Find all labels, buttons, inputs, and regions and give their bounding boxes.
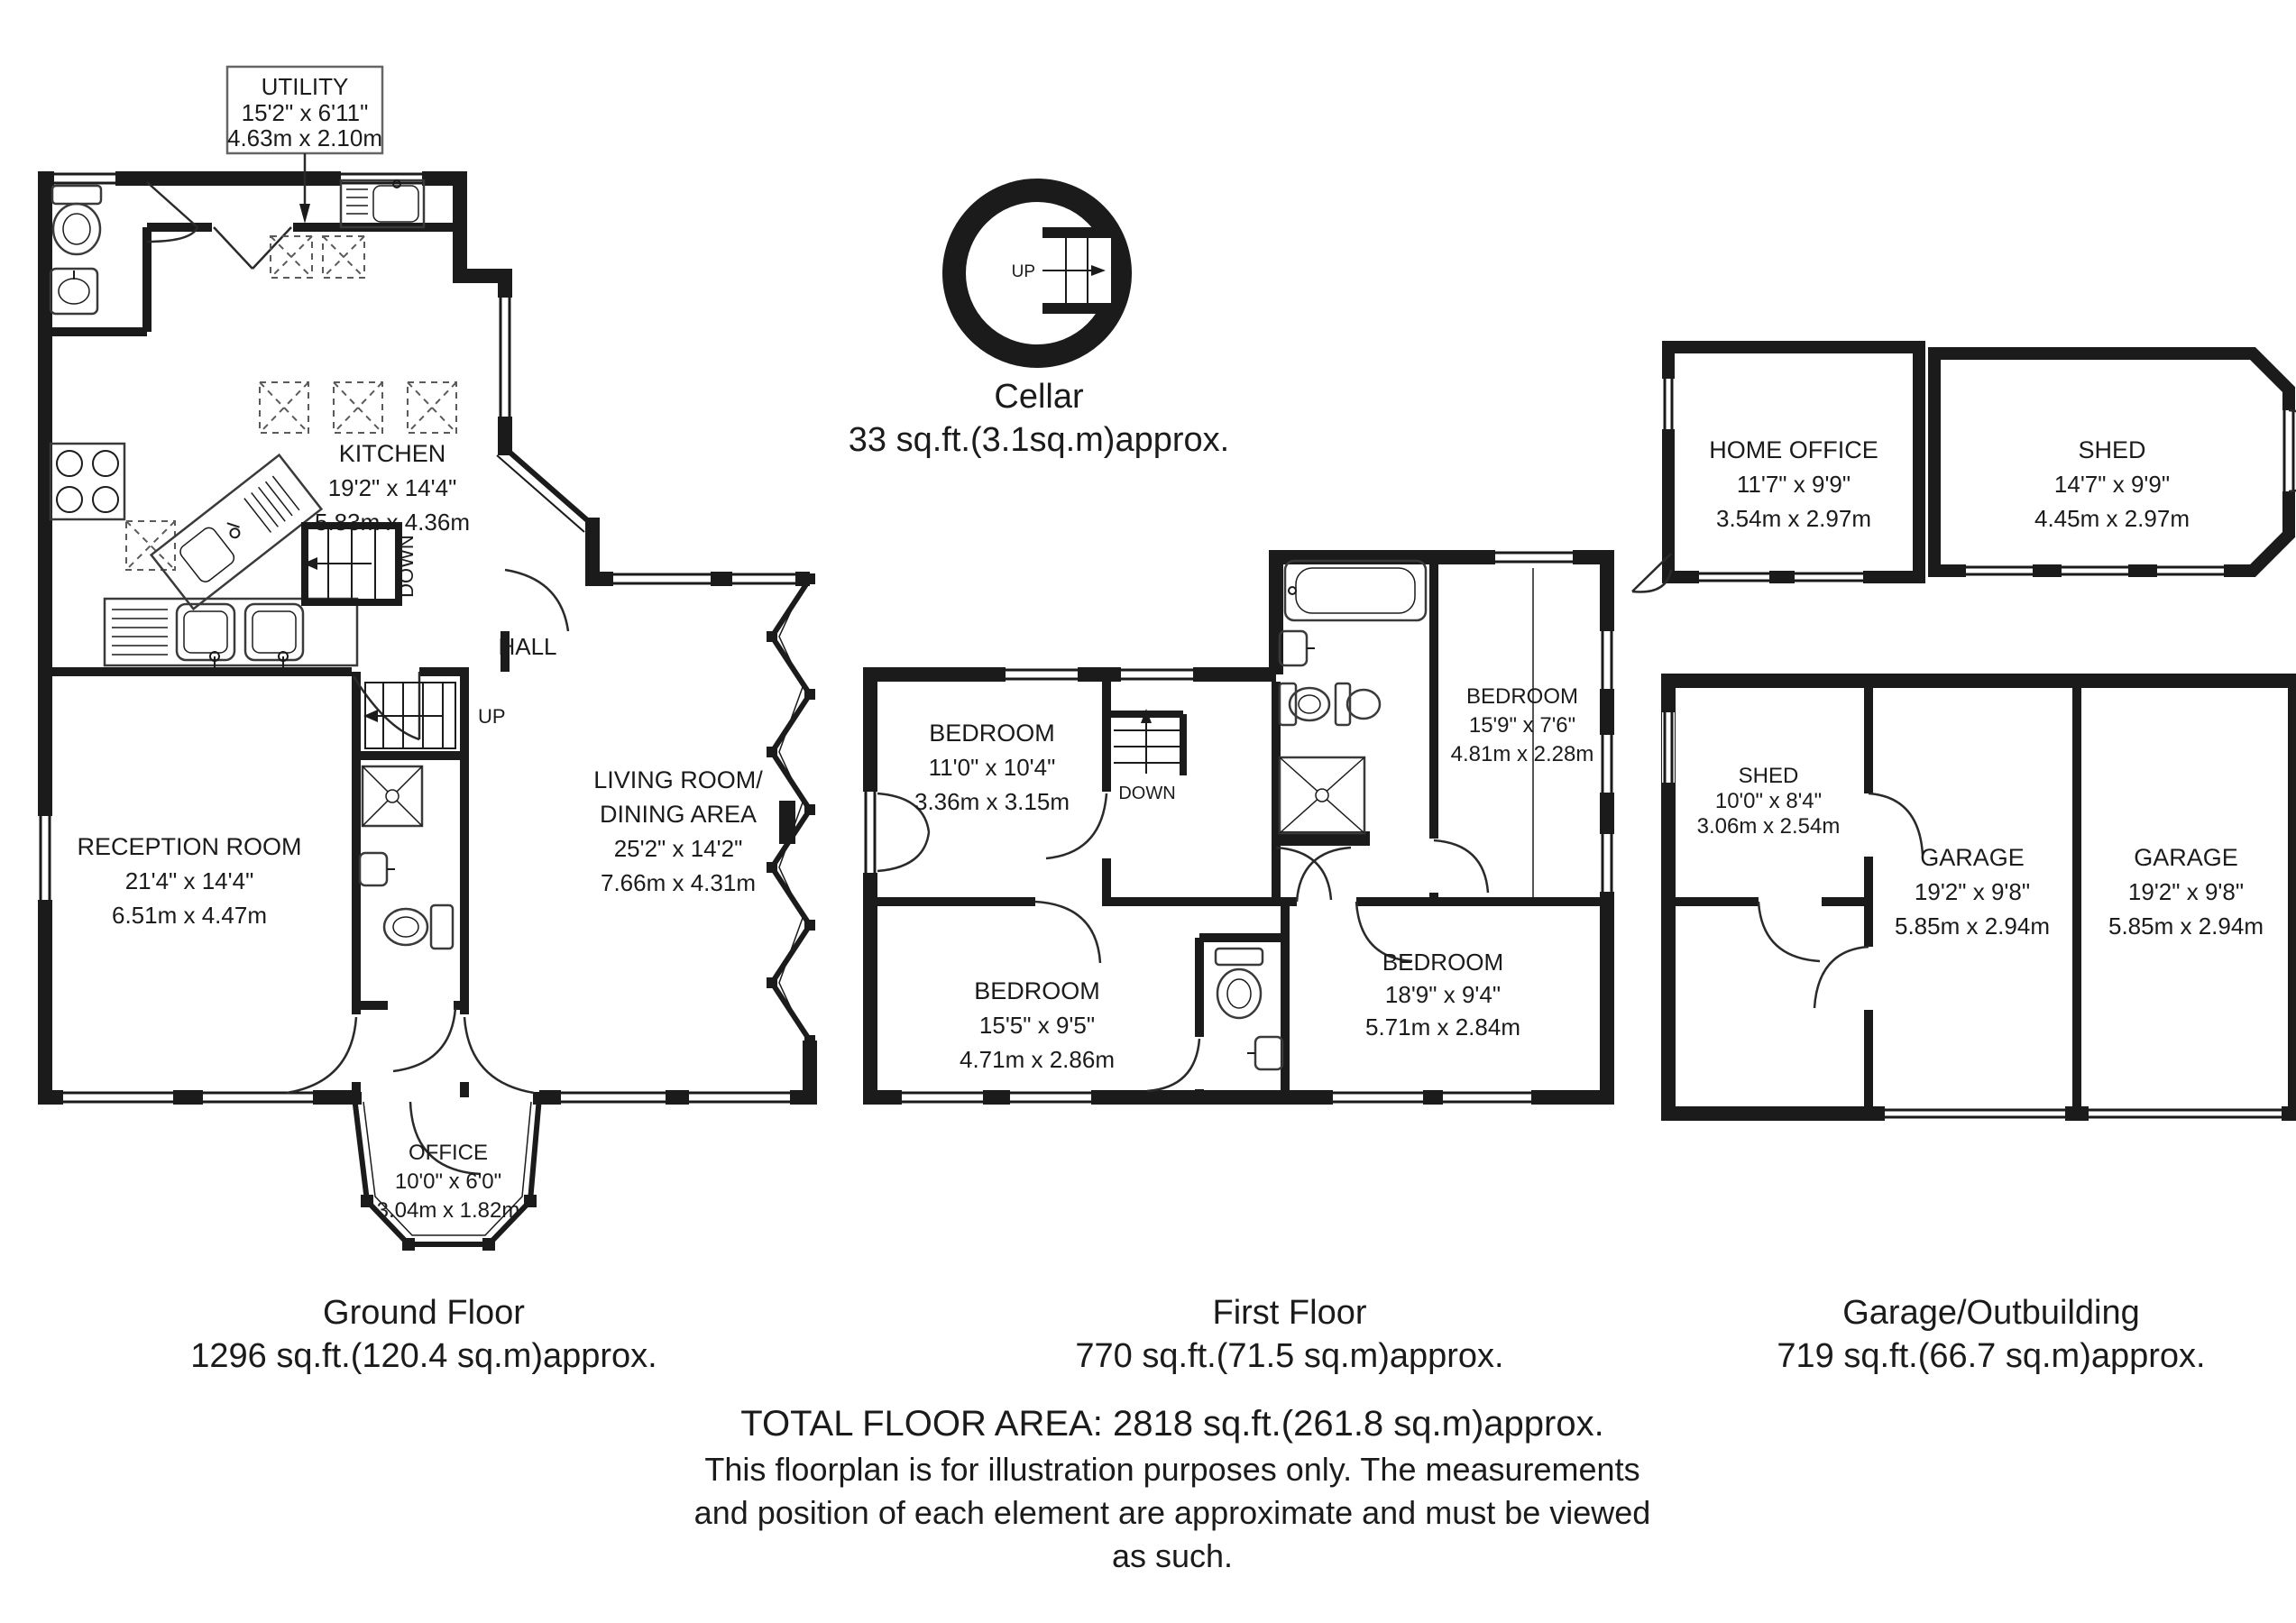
hall-room-label: HALL: [498, 633, 556, 660]
cloakroom-toilet-icon: [384, 905, 453, 949]
utility-callout: UTILITY 15'2" x 6'11" 4.63m x 2.10m: [227, 67, 382, 224]
outbuilding-plan: HOME OFFICE 11'7" x 9'9" 3.54m x 2.97m S…: [1632, 347, 2296, 1121]
bedroom-se-dims-imperial: 18'9" x 9'4": [1385, 981, 1501, 1008]
ground-floor-plan: DOWN UP UTILITY 15'2" x 6'11" 4.63m x 2.…: [38, 67, 817, 1251]
ground-floor-title: Ground Floor: [323, 1294, 525, 1332]
garage-west-dims-imperial: 19'2" x 9'8": [1915, 878, 2030, 905]
utility-dims-imperial: 15'2" x 6'11": [242, 99, 369, 126]
reception-dims-metric: 6.51m x 4.47m: [112, 902, 267, 929]
ground-floor-internal-walls: [45, 227, 505, 1097]
shower-icon: [363, 766, 422, 826]
utility-room-label: UTILITY: [262, 73, 349, 100]
shed-small-label: SHED: [1739, 764, 1799, 788]
first-floor-stairs-down-label: DOWN: [1118, 784, 1175, 803]
office-dims-metric: 3.04m x 1.82m: [377, 1198, 520, 1223]
kitchen-sink-icon: [105, 599, 357, 671]
cellar-stairs-up-label: UP: [1012, 262, 1035, 281]
living-room-bay-windows: [767, 573, 815, 1046]
bedroom-n(w)-label: BEDROOM: [929, 720, 1055, 747]
kitchen-room-label: KITCHEN: [339, 440, 446, 467]
bathroom-sink-icon: [1280, 631, 1307, 665]
first-floor-shower-icon: [1280, 757, 1364, 833]
bathroom-fixtures: [1280, 561, 1426, 833]
total-floor-area: TOTAL FLOOR AREA: 2818 sq.ft.(261.8 sq.m…: [740, 1404, 1603, 1444]
first-floor-area: 770 sq.ft.(71.5 sq.m)approx.: [1075, 1337, 1503, 1375]
garage-east-dims-metric: 5.85m x 2.94m: [2108, 912, 2264, 940]
home-office-label: HOME OFFICE: [1709, 436, 1878, 463]
bathroom-toilet-icon: [1280, 683, 1329, 725]
ground-floor-area: 1296 sq.ft.(120.4 sq.m)approx.: [190, 1337, 657, 1375]
garage-east-label: GARAGE: [2134, 844, 2238, 871]
living-room-label-2: DINING AREA: [600, 801, 757, 828]
cloakroom-sink-icon: [360, 853, 395, 885]
first-floor-wc-fixtures: [1216, 949, 1282, 1069]
bedroom-ne-label: BEDROOM: [1466, 684, 1578, 709]
bedroom-ne-dims-imperial: 15'9" x 7'6": [1469, 713, 1575, 738]
wc-toilet-icon: [52, 186, 101, 254]
ground-stairs-down: DOWN: [303, 526, 418, 602]
wc2-toilet-icon: [1216, 949, 1263, 965]
bedroom-nw-dims-metric: 3.36m x 3.15m: [914, 788, 1070, 815]
reception-dims-imperial: 21'4" x 14'4": [125, 867, 254, 894]
office-room-label: OFFICE: [409, 1141, 488, 1165]
wc-sink-icon: [51, 269, 97, 314]
shed-large-label: SHED: [2078, 436, 2145, 463]
bidet-icon: [1336, 683, 1380, 725]
stairs-down-label: DOWN: [395, 535, 418, 598]
home-office-building: HOME OFFICE 11'7" x 9'9" 3.54m x 2.97m: [1632, 347, 1919, 592]
ground-floor-outer-walls: [45, 171, 817, 1105]
floorplan-drawing: DOWN UP UTILITY 15'2" x 6'11" 4.63m x 2.…: [0, 0, 2296, 1623]
hob-icon: [51, 444, 124, 519]
bedroom-sw-label: BEDROOM: [974, 977, 1100, 1004]
utility-dims-metric: 4.63m x 2.10m: [227, 124, 382, 151]
kitchen-dims-imperial: 19'2" x 14'4": [328, 474, 457, 501]
outbuilding-area: 719 sq.ft.(66.7 sq.m)approx.: [1777, 1337, 2205, 1375]
disclaimer-line-1: This floorplan is for illustration purpo…: [704, 1451, 1639, 1488]
utility-sink-icon: [341, 180, 424, 227]
bedroom-ne-dims-metric: 4.81m x 2.28m: [1451, 742, 1594, 766]
garage-east-dims-imperial: 19'2" x 9'8": [2128, 878, 2244, 905]
shed-large-building: SHED 14'7" x 9'9" 4.45m x 2.97m: [1934, 353, 2296, 577]
outbuilding-title: Garage/Outbuilding: [1842, 1294, 2140, 1332]
home-office-dims-metric: 3.54m x 2.97m: [1716, 505, 1871, 532]
bedroom-se-label: BEDROOM: [1382, 949, 1503, 976]
wc2-sink-icon: [1255, 1037, 1282, 1069]
cellar-plan: UP Cellar 33 sq.ft.(3.1sq.m)approx.: [849, 190, 1229, 459]
disclaimer-line-2: and position of each element are approxi…: [694, 1494, 1651, 1531]
first-floor-plan: DOWN: [863, 550, 1614, 1105]
garage-west-label: GARAGE: [1920, 844, 2025, 871]
shed-small-dims-metric: 3.06m x 2.54m: [1697, 814, 1841, 839]
first-floor-stairs-down: DOWN: [1114, 709, 1180, 803]
disclaimer-line-3: as such.: [1112, 1537, 1233, 1574]
living-room-dims-metric: 7.66m x 4.31m: [601, 869, 756, 896]
floorplan-sheet: DOWN UP UTILITY 15'2" x 6'11" 4.63m x 2.…: [0, 0, 2296, 1623]
first-floor-title: First Floor: [1213, 1294, 1367, 1332]
home-office-dims-imperial: 11'7" x 9'9": [1737, 471, 1851, 498]
bedroom-sw-dims-imperial: 15'5" x 9'5": [979, 1012, 1095, 1039]
bedroom-nw-dims-imperial: 11'0" x 10'4": [929, 754, 1056, 781]
ground-stairs-up: UP: [363, 683, 506, 748]
living-room-label-1: LIVING ROOM/: [593, 766, 763, 793]
living-room-dims-imperial: 25'2" x 14'2": [614, 835, 743, 862]
shed-small-dims-imperial: 10'0" x 8'4": [1715, 789, 1822, 813]
garage-west-dims-metric: 5.85m x 2.94m: [1895, 912, 2050, 940]
shed-large-dims-imperial: 14'7" x 9'9": [2054, 471, 2170, 498]
kitchen-island-icon: [152, 455, 322, 610]
cellar-title: Cellar: [994, 378, 1084, 416]
bedroom-sw-dims-metric: 4.71m x 2.86m: [960, 1046, 1115, 1073]
office-dims-imperial: 10'0" x 6'0": [395, 1169, 501, 1194]
kitchen-dims-metric: 5.83m x 4.36m: [315, 509, 470, 536]
garage-block: SHED 10'0" x 8'4" 3.06m x 2.54m GARAGE 1…: [1662, 681, 2295, 1121]
footer: Ground Floor 1296 sq.ft.(120.4 sq.m)appr…: [190, 1294, 2205, 1574]
shed-large-dims-metric: 4.45m x 2.97m: [2034, 505, 2190, 532]
reception-room-label: RECEPTION ROOM: [77, 833, 301, 860]
bedroom-se-dims-metric: 5.71m x 2.84m: [1365, 1013, 1520, 1041]
cellar-area: 33 sq.ft.(3.1sq.m)approx.: [849, 421, 1229, 459]
fireplace: [779, 801, 795, 844]
stairs-up-label: UP: [478, 705, 506, 728]
